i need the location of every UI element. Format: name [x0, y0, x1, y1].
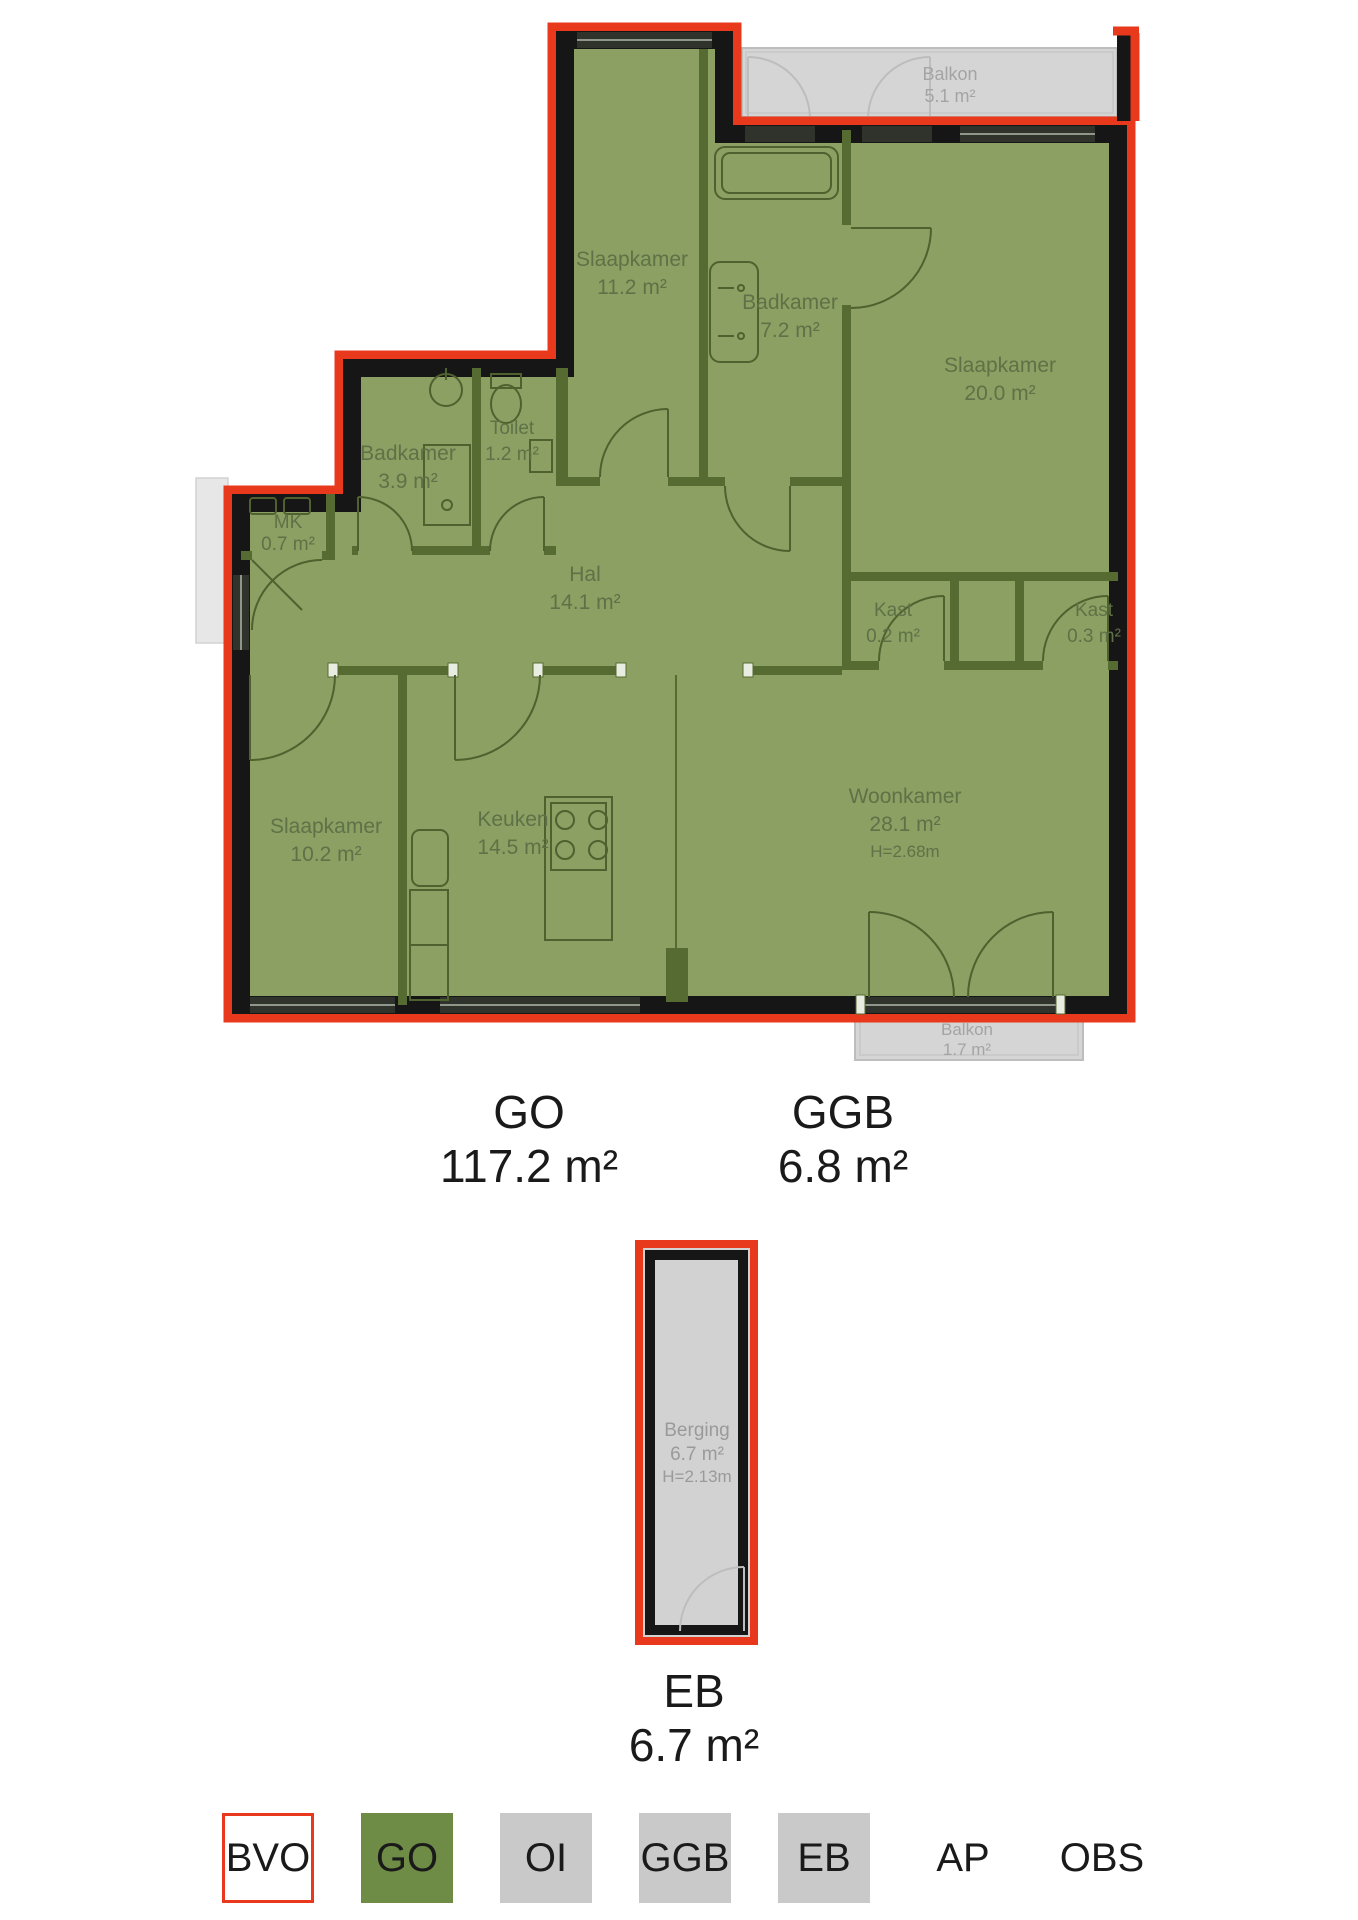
room-label-badkamer1-name: Badkamer [742, 291, 838, 314]
storage-label-area: 6.7 m² [670, 1444, 724, 1465]
room-label-hal-name: Hal [569, 563, 601, 586]
legend-item-go: GO [361, 1813, 453, 1903]
room-label-balkon-top-area: 5.1 m² [924, 86, 975, 106]
room-label-kast1-area: 0.2 m² [866, 626, 920, 647]
storage-label-name: Berging [664, 1420, 730, 1441]
legend-label-eb: EB [797, 1836, 850, 1881]
summary-eb-label: EB [544, 1664, 844, 1718]
summary-ggb-value: 6.8 m² [693, 1139, 993, 1193]
summary-eb: EB 6.7 m² [544, 1664, 844, 1772]
summary-eb-value: 6.7 m² [544, 1718, 844, 1772]
room-label-mk-name: MK [274, 512, 303, 533]
legend-item-oi: OI [500, 1813, 592, 1903]
balcony-top: Balkon 5.1 m² [742, 48, 1117, 119]
legend-label-oi: OI [525, 1836, 567, 1881]
legend-label-bvo: BVO [226, 1836, 310, 1881]
legend-label-go: GO [376, 1836, 438, 1881]
storage-label-height: H=2.13m [662, 1467, 731, 1486]
room-label-slaapkamer1-name: Slaapkamer [576, 248, 688, 271]
room-label-balkon-bottom-area: 1.7 m² [943, 1040, 992, 1059]
summary-go: GO 117.2 m² [379, 1085, 679, 1193]
room-label-woonkamer-height: H=2.68m [870, 842, 939, 861]
room-label-kast2-area: 0.3 m² [1067, 626, 1121, 647]
room-label-kast1-name: Kast [874, 600, 913, 621]
room-label-woonkamer-area: 28.1 m² [869, 813, 940, 836]
legend-label-obs: OBS [1060, 1836, 1144, 1881]
room-label-kast2-name: Kast [1075, 600, 1114, 621]
room-label-slaapkamer2-area: 20.0 m² [964, 382, 1035, 405]
bvo-outline [228, 27, 1131, 1018]
legend-item-obs: OBS [1056, 1813, 1148, 1903]
legend: BVO GO OI GGB EB AP OBS [222, 1813, 1148, 1903]
room-label-keuken-name: Keuken [477, 808, 548, 831]
storage-unit: Berging 6.7 m² H=2.13m [639, 1244, 754, 1641]
room-label-slaapkamer3-area: 10.2 m² [290, 843, 361, 866]
legend-item-ggb: GGB [639, 1813, 731, 1903]
room-label-toilet-name: Toilet [490, 418, 535, 439]
room-label-hal-area: 14.1 m² [549, 591, 620, 614]
summary-ggb-label: GGB [693, 1085, 993, 1139]
legend-label-ap: AP [936, 1836, 989, 1881]
summary-go-label: GO [379, 1085, 679, 1139]
room-label-slaapkamer3-name: Slaapkamer [270, 815, 382, 838]
room-label-keuken-area: 14.5 m² [477, 836, 548, 859]
room-label-slaapkamer1-area: 11.2 m² [597, 276, 667, 299]
floorplan-drawing: Balkon 5.1 m² Balkon 1.7 m² [0, 0, 1358, 1920]
room-label-badkamer2-area: 3.9 m² [378, 470, 438, 493]
summary-ggb: GGB 6.8 m² [693, 1085, 993, 1193]
legend-item-eb: EB [778, 1813, 870, 1903]
room-label-toilet-area: 1.2 m² [485, 444, 539, 465]
room-label-mk-area: 0.7 m² [261, 534, 315, 555]
legend-label-ggb: GGB [641, 1836, 730, 1881]
room-label-badkamer1-area: 7.2 m² [760, 319, 820, 342]
floorplan-page: { "colors": { "bvo_red": "#e8391d", "pla… [0, 0, 1358, 1920]
room-label-balkon-bottom-name: Balkon [941, 1020, 993, 1039]
room-label-balkon-top-name: Balkon [922, 64, 977, 84]
room-label-woonkamer-name: Woonkamer [849, 785, 962, 808]
room-label-slaapkamer2-name: Slaapkamer [944, 354, 1056, 377]
neighbor-structure [196, 478, 228, 643]
summary-go-value: 117.2 m² [379, 1139, 679, 1193]
legend-item-bvo: BVO [222, 1813, 314, 1903]
room-label-badkamer2-name: Badkamer [360, 442, 456, 465]
legend-item-ap: AP [917, 1813, 1009, 1903]
